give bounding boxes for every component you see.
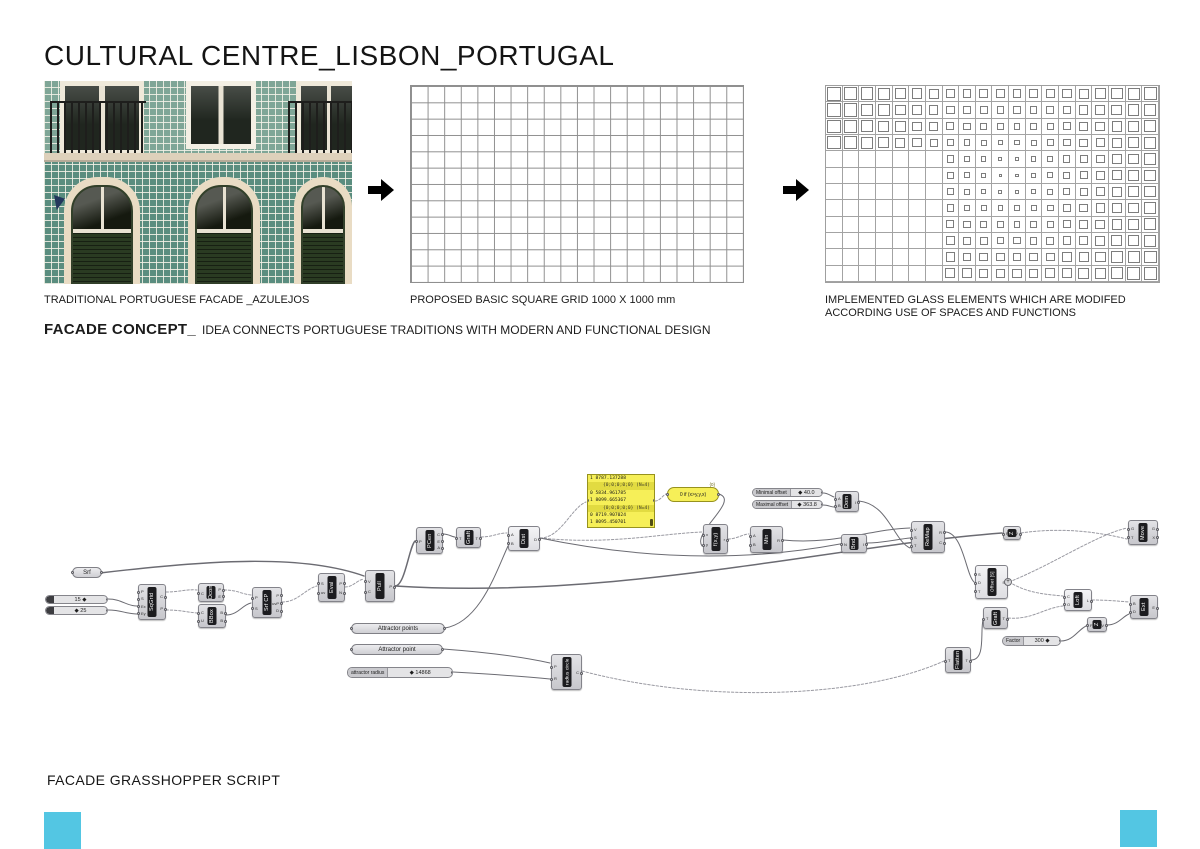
glass-cell	[876, 266, 893, 282]
glass-cell	[1126, 266, 1143, 282]
glass-cell	[943, 233, 960, 249]
glass-cell	[1059, 233, 1076, 249]
srf-cp[interactable]: Srf CPPSPuvPD	[252, 587, 282, 618]
glass-cell	[1126, 184, 1143, 200]
glass-cell	[1109, 102, 1126, 118]
glass-cell	[1009, 119, 1026, 135]
glass-cell	[1026, 86, 1043, 102]
glass-cell	[943, 102, 960, 118]
glass-cell	[893, 102, 910, 118]
glass-cell	[843, 233, 860, 249]
glass-cell	[826, 151, 843, 167]
glass-cell	[893, 168, 910, 184]
glass-cell	[1042, 266, 1059, 282]
glass-cell	[943, 135, 960, 151]
glass-cell	[1092, 135, 1109, 151]
glass-cell	[843, 102, 860, 118]
glass-grid-panel	[825, 85, 1160, 283]
glass-cell	[1026, 184, 1043, 200]
facade-photo	[44, 81, 352, 284]
glass-cell	[909, 184, 926, 200]
glass-cell	[876, 86, 893, 102]
glass-cell	[1076, 266, 1093, 282]
basic-grid-panel	[410, 85, 744, 283]
glass-cell	[1076, 233, 1093, 249]
glass-cell	[826, 184, 843, 200]
glass-cell	[1126, 168, 1143, 184]
glass-cell	[1092, 119, 1109, 135]
glass-cell	[1109, 249, 1126, 265]
glass-cell	[976, 168, 993, 184]
glass-cell	[1142, 86, 1159, 102]
glass-cell	[843, 249, 860, 265]
glass-cell	[843, 151, 860, 167]
glass-cell	[1092, 249, 1109, 265]
glass-cell	[943, 151, 960, 167]
concept-line: FACADE CONCEPT_IDEA CONNECTS PORTUGUESE …	[44, 321, 711, 338]
expression[interactable]: 0 if (x>y,y,x){0}	[667, 487, 719, 502]
facade-balcony	[50, 101, 146, 158]
glass-cell	[1109, 266, 1126, 282]
glass-cell	[1042, 86, 1059, 102]
glass-cell	[943, 184, 960, 200]
glass-cell	[1042, 200, 1059, 216]
glass-cell	[909, 119, 926, 135]
glass-cell	[826, 135, 843, 151]
glass-cell	[1092, 102, 1109, 118]
glass-cell	[959, 102, 976, 118]
glass-cell	[1009, 200, 1026, 216]
dcon[interactable]: DconCPE	[198, 583, 224, 602]
glass-cell	[859, 249, 876, 265]
glass-cell	[843, 86, 860, 102]
glass-cell	[1009, 233, 1026, 249]
glass-cell	[1076, 249, 1093, 265]
glass-cell	[1026, 168, 1043, 184]
glass-cell	[1009, 168, 1026, 184]
glass-cell	[1009, 184, 1026, 200]
pcen[interactable]: PCenPCEA	[416, 527, 443, 554]
slider-25[interactable]: ◆ 25	[45, 606, 108, 615]
glass-cell	[992, 135, 1009, 151]
glass-cell	[876, 119, 893, 135]
glass-cell	[926, 233, 943, 249]
glass-cell	[1142, 266, 1159, 282]
glass-cell	[926, 168, 943, 184]
ext[interactable]: ExtBDE	[1130, 595, 1158, 619]
glass-cell	[859, 233, 876, 249]
graft-2[interactable]: GraftTT	[983, 607, 1008, 629]
attractor-point[interactable]: Attractor point	[351, 644, 443, 655]
pull[interactable]: PullVCP	[365, 570, 395, 602]
glass-cell	[1076, 102, 1093, 118]
slider-max-offset[interactable]: Maximal offset◆ 363.8	[752, 500, 823, 509]
glass-cell	[843, 200, 860, 216]
glass-cell	[1126, 151, 1143, 167]
glass-cell	[1092, 233, 1109, 249]
glass-cell	[826, 249, 843, 265]
glass-cell	[893, 200, 910, 216]
bbox[interactable]: BBoxCUBB	[198, 604, 226, 628]
glass-cell	[1026, 200, 1043, 216]
glass-cell	[1092, 217, 1109, 233]
facade-window-top	[186, 81, 256, 149]
footer-label: FACADE GRASSHOPPER SCRIPT	[47, 772, 280, 788]
glass-cell	[1142, 168, 1159, 184]
glass-cell	[959, 86, 976, 102]
glass-cell	[1109, 151, 1126, 167]
glass-cell	[1092, 86, 1109, 102]
glass-cell	[859, 184, 876, 200]
glass-cell	[1059, 266, 1076, 282]
glass-cell	[909, 86, 926, 102]
glass-cell	[1009, 217, 1026, 233]
glass-cell	[893, 119, 910, 135]
glass-cell	[859, 102, 876, 118]
glass-cell	[976, 217, 993, 233]
glass-cell	[1059, 119, 1076, 135]
glass-cell	[976, 266, 993, 282]
glass-cell	[826, 217, 843, 233]
glass-cell	[976, 119, 993, 135]
glass-cell	[1092, 200, 1109, 216]
glass-cell	[1026, 266, 1043, 282]
glass-cell	[1126, 200, 1143, 216]
glass-cell	[859, 266, 876, 282]
glass-cell	[1092, 168, 1109, 184]
caption-facade: TRADITIONAL PORTUGUESE FACADE _AZULEJOS	[44, 294, 309, 307]
facade-window-bottom	[188, 177, 260, 284]
glass-cell	[1026, 217, 1043, 233]
glass-cell	[876, 233, 893, 249]
fxy[interactable]: f(x,y)xyr	[703, 524, 728, 554]
glass-cell	[1126, 119, 1143, 135]
glass-cell	[943, 119, 960, 135]
glass-cell	[1042, 184, 1059, 200]
sqgrid[interactable]: SqGridPSExEyCP	[138, 584, 166, 620]
glass-cell	[992, 168, 1009, 184]
glass-cell	[859, 119, 876, 135]
facade-ledge	[44, 153, 352, 162]
glass-cell	[826, 119, 843, 135]
glass-cell	[926, 266, 943, 282]
glass-cell	[893, 217, 910, 233]
glass-cell	[1009, 102, 1026, 118]
glass-cell	[1126, 86, 1143, 102]
glass-cell	[1009, 86, 1026, 102]
glass-cell	[843, 266, 860, 282]
arrow-right-icon	[783, 179, 809, 201]
glass-cell	[1109, 135, 1126, 151]
glass-cell	[826, 168, 843, 184]
glass-cell	[926, 86, 943, 102]
glass-cell	[1059, 184, 1076, 200]
glass-cell	[992, 233, 1009, 249]
dist[interactable]: DistABD	[508, 526, 540, 551]
glass-cell	[1042, 102, 1059, 118]
concept-text: IDEA CONNECTS PORTUGUESE TRADITIONS WITH…	[202, 323, 711, 337]
glass-cell	[1059, 249, 1076, 265]
glass-cell	[1076, 119, 1093, 135]
glass-cell	[976, 102, 993, 118]
glass-cell	[959, 266, 976, 282]
glass-cell	[1142, 184, 1159, 200]
glass-cell	[926, 151, 943, 167]
glass-cell	[959, 249, 976, 265]
glass-cell	[843, 119, 860, 135]
glass-cell	[926, 217, 943, 233]
bnd[interactable]: BndNI	[841, 534, 867, 553]
glass-cell	[1109, 200, 1126, 216]
glass-cell	[992, 119, 1009, 135]
glass-cell	[909, 233, 926, 249]
glass-cell	[893, 86, 910, 102]
glass-cell	[1142, 233, 1159, 249]
glass-cell	[943, 200, 960, 216]
glass-cell	[992, 217, 1009, 233]
remap[interactable]: ReMapVSTRC	[911, 521, 945, 553]
glass-cell	[826, 200, 843, 216]
glass-cell	[893, 249, 910, 265]
glass-cell	[876, 151, 893, 167]
glass-cell	[959, 233, 976, 249]
glass-cell	[1142, 249, 1159, 265]
loft[interactable]: LoftCOL	[1064, 589, 1092, 611]
glass-cell	[1042, 249, 1059, 265]
glass-cell	[1126, 102, 1143, 118]
glass-cell	[909, 135, 926, 151]
glass-cell	[1059, 217, 1076, 233]
glass-cell	[992, 266, 1009, 282]
radius-circle[interactable]: radius circlePRC	[551, 654, 582, 690]
glass-cell	[876, 168, 893, 184]
slider-15[interactable]: 15 ◆	[45, 595, 108, 604]
glass-cell	[959, 168, 976, 184]
glass-cell	[909, 102, 926, 118]
glass-cell	[943, 168, 960, 184]
glass-cell	[992, 102, 1009, 118]
glass-cell	[1092, 266, 1109, 282]
glass-cell	[1142, 102, 1159, 118]
glass-cell	[992, 151, 1009, 167]
flatten[interactable]: FlattenTT	[945, 647, 971, 673]
glass-cell	[959, 184, 976, 200]
slider-attractor-radius[interactable]: attractor radius◆ 14868	[347, 667, 453, 678]
glass-cell	[1009, 135, 1026, 151]
concept-heading: FACADE CONCEPT_	[44, 321, 196, 338]
attractor-points[interactable]: Attractor points	[351, 623, 445, 634]
glass-cell	[1026, 135, 1043, 151]
glass-cell	[1059, 135, 1076, 151]
glass-cell	[1109, 86, 1126, 102]
glass-cell	[1059, 200, 1076, 216]
glass-cell	[1076, 135, 1093, 151]
caption-grid: PROPOSED BASIC SQUARE GRID 1000 X 1000 m…	[410, 294, 675, 307]
glass-cell	[826, 86, 843, 102]
glass-cell	[1059, 86, 1076, 102]
glass-cell	[1109, 184, 1126, 200]
slider-factor[interactable]: Factor300 ◆	[1002, 636, 1061, 646]
glass-cell	[1076, 168, 1093, 184]
glass-cell	[1142, 200, 1159, 216]
glass-cell	[893, 135, 910, 151]
glass-cell	[909, 249, 926, 265]
corner-square-left	[44, 812, 81, 849]
unit-z[interactable]: ZFV	[1003, 526, 1021, 540]
glass-cell	[843, 217, 860, 233]
glass-cell	[976, 151, 993, 167]
eval[interactable]: EvalSuvPN	[318, 573, 345, 602]
glass-cell	[859, 86, 876, 102]
glass-cell	[893, 184, 910, 200]
vec-z[interactable]: ZFV	[1087, 617, 1107, 632]
glass-cell	[1092, 184, 1109, 200]
glass-cell	[843, 135, 860, 151]
page-title: CULTURAL CENTRE_LISBON_PORTUGAL	[44, 40, 614, 72]
slider-min-offset[interactable]: Minimal offset◆ 40.0	[752, 488, 823, 497]
glass-cell	[1042, 151, 1059, 167]
glass-cell	[1076, 151, 1093, 167]
glass-cell	[1059, 151, 1076, 167]
glass-cell	[859, 168, 876, 184]
glass-cell	[1009, 249, 1026, 265]
glass-cell	[859, 151, 876, 167]
glass-cell	[959, 135, 976, 151]
min[interactable]: MinABR	[750, 526, 783, 553]
glass-cell	[859, 200, 876, 216]
glass-cell	[1109, 119, 1126, 135]
glass-cell	[1142, 217, 1159, 233]
glass-cell	[1042, 233, 1059, 249]
glass-cell	[1126, 249, 1143, 265]
glass-cell	[1026, 249, 1043, 265]
facade-balcony	[288, 101, 352, 158]
glass-cell	[992, 200, 1009, 216]
glass-cell	[1076, 184, 1093, 200]
glass-cell	[859, 135, 876, 151]
glass-cell	[926, 249, 943, 265]
arrow-right-icon	[368, 179, 394, 201]
glass-cell	[1142, 119, 1159, 135]
glass-cell	[893, 233, 910, 249]
move[interactable]: MoveGTGX	[1128, 520, 1158, 545]
glass-cell	[926, 102, 943, 118]
offset-s[interactable]: Offset [S]SDTS+	[975, 565, 1008, 599]
glass-cell	[826, 266, 843, 282]
glass-cell	[943, 217, 960, 233]
facade-window-bottom	[294, 177, 352, 284]
glass-cell	[1042, 119, 1059, 135]
glass-cell	[992, 86, 1009, 102]
facade-window-bottom	[64, 177, 140, 284]
glass-cell	[1109, 217, 1126, 233]
glass-cell	[1092, 151, 1109, 167]
glass-cell	[1076, 86, 1093, 102]
glass-cell	[1009, 266, 1026, 282]
glass-cell	[926, 184, 943, 200]
glass-cell	[1142, 135, 1159, 151]
glass-cell	[1126, 135, 1143, 151]
glass-cell	[843, 184, 860, 200]
glass-cell	[909, 266, 926, 282]
glass-cell	[959, 217, 976, 233]
glass-cell	[976, 184, 993, 200]
glass-cell	[926, 200, 943, 216]
glass-cell	[909, 151, 926, 167]
glass-cell	[1026, 151, 1043, 167]
glass-cell	[992, 249, 1009, 265]
glass-cell	[1059, 168, 1076, 184]
glass-cell	[1126, 233, 1143, 249]
glass-cell	[1009, 151, 1026, 167]
glass-cell	[876, 102, 893, 118]
glass-cell	[976, 200, 993, 216]
glass-cell	[943, 266, 960, 282]
glass-cell	[876, 200, 893, 216]
data-panel[interactable]: 1 8787.137288{0;0;0;0;0} (N=4)0 5834.961…	[587, 474, 655, 528]
glass-cell	[926, 119, 943, 135]
glass-cell	[943, 86, 960, 102]
glass-cell	[1042, 217, 1059, 233]
glass-cell	[959, 119, 976, 135]
glass-cell	[976, 233, 993, 249]
glass-cell	[1109, 168, 1126, 184]
glass-cell	[843, 168, 860, 184]
glass-cell	[1026, 119, 1043, 135]
glass-cell	[1076, 217, 1093, 233]
glass-cell	[909, 200, 926, 216]
glass-cell	[876, 217, 893, 233]
glass-cell	[893, 151, 910, 167]
glass-cell	[976, 249, 993, 265]
glass-cell	[1042, 135, 1059, 151]
graft-1[interactable]: GraftTT	[456, 527, 481, 548]
caption-glass: IMPLEMENTED GLASS ELEMENTS WHICH ARE MOD…	[825, 294, 1126, 320]
glass-cell	[876, 184, 893, 200]
glass-cell	[976, 135, 993, 151]
glass-cell	[959, 200, 976, 216]
glass-cell	[1126, 217, 1143, 233]
glass-cell	[1109, 233, 1126, 249]
glass-cell	[1142, 151, 1159, 167]
srf-param[interactable]: Srf	[72, 567, 102, 578]
glass-cell	[926, 135, 943, 151]
glass-cell	[1076, 200, 1093, 216]
glass-cell	[909, 217, 926, 233]
glass-cell	[959, 151, 976, 167]
glass-cell	[826, 233, 843, 249]
dom[interactable]: DomABI	[835, 491, 859, 512]
glass-cell	[1026, 233, 1043, 249]
corner-square-right	[1120, 810, 1157, 847]
glass-cell	[976, 86, 993, 102]
glass-cell	[1059, 102, 1076, 118]
glass-cell	[876, 249, 893, 265]
glass-cell	[1026, 102, 1043, 118]
glass-cell	[1042, 168, 1059, 184]
glass-cell	[992, 184, 1009, 200]
glass-cell	[876, 135, 893, 151]
glass-cell	[943, 249, 960, 265]
glass-cell	[859, 217, 876, 233]
glass-cell	[826, 102, 843, 118]
glass-cell	[909, 168, 926, 184]
glass-cell	[893, 266, 910, 282]
